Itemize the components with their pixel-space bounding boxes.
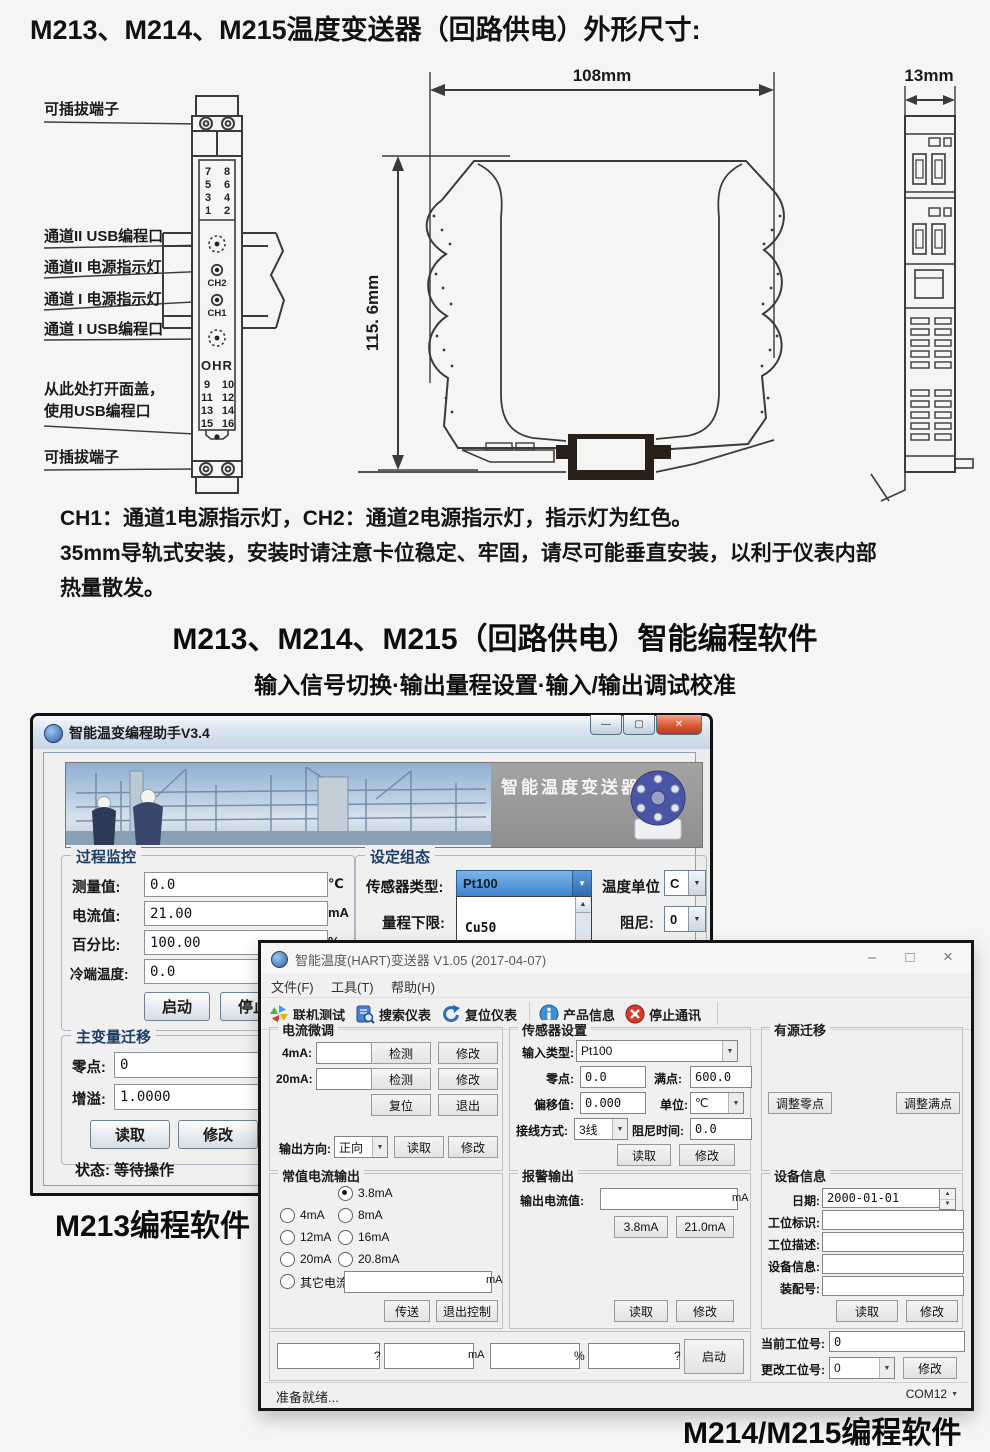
radio-8ma[interactable] [338,1208,353,1223]
unit-combo[interactable]: ℃ ▼ [690,1092,744,1114]
radio-other-current[interactable] [280,1274,295,1289]
titlebar[interactable]: 智能温变编程助手V3.4 — ▢ ✕ [33,716,710,749]
group-title: 报警输出 [518,1166,578,1185]
gain-label: 增溢: [72,1088,106,1109]
menu-file[interactable]: 文件(F) [271,977,314,996]
tag-input[interactable] [822,1210,964,1230]
status-text: 准备就绪... [276,1387,339,1406]
current-unit: mA [328,905,349,920]
reset-icon [441,1004,461,1024]
modify-20ma-button[interactable]: 修改 [438,1068,498,1090]
sensor-type-combo[interactable]: Pt100 ▼ [456,870,592,897]
offset-input[interactable]: 0.000 [580,1092,646,1114]
svg-text:7: 7 [205,166,211,178]
svg-text:12: 12 [222,392,234,404]
callout-plug-top: 可插拔端子 [44,98,119,119]
radio-label: 20mA [300,1252,331,1266]
maximize-button[interactable]: □ [895,943,925,971]
test-input-1[interactable] [277,1343,380,1369]
radio-12ma[interactable] [280,1230,295,1245]
toolbar-reset-device[interactable]: 复位仪表 [441,1002,517,1026]
alarm-output-input[interactable] [600,1188,738,1210]
measure-unit: ℃ [328,876,344,892]
date-input[interactable]: 2000-01-01 [822,1188,946,1208]
svg-text:5: 5 [205,179,211,191]
send-button[interactable]: 传送 [384,1300,430,1322]
chevron-down-icon[interactable]: ▼ [688,907,705,931]
svg-text:9: 9 [204,379,210,391]
svg-text:CH2: CH2 [207,278,226,289]
maximize-button[interactable]: ▢ [623,715,655,735]
svg-text:15: 15 [201,418,213,430]
minimize-button[interactable]: – [857,943,887,971]
damping-time-input[interactable]: 0.0 [690,1118,752,1140]
software-section-title: M213、M214、M215（回路供电）智能编程软件 [0,614,990,658]
chevron-down-icon: ▼ [951,1391,958,1398]
separator-2: mA [468,1349,485,1361]
chevron-down-icon[interactable]: ▼ [728,1093,743,1113]
temp-unit-label: 温度单位 [602,876,660,897]
group-device-info: 设备信息 日期: 2000-01-01 ▲ ▼ 工位标识: 工位描述: 设备信息… [761,1173,963,1329]
change-station-combo[interactable]: 0 ▼ [829,1357,895,1379]
output-direction-combo[interactable]: 正向 ▼ [334,1136,388,1158]
menu-help[interactable]: 帮助(H) [391,977,435,996]
current-value-input[interactable]: 21.00 [144,901,328,926]
input-type-label: 输入类型: [522,1044,574,1061]
install-note-line3: 热量散发。 [60,572,960,602]
reset-button[interactable]: 复位 [371,1094,431,1116]
output-direction-label: 输出方向: [279,1140,331,1157]
toolbar-stop-comm[interactable]: 停止通讯 [625,1002,701,1026]
start-button[interactable]: 启动 [144,992,210,1021]
percent-label: 百分比: [72,934,120,955]
group-title: 设定组态 [365,846,435,867]
toolbar-search-device[interactable]: 搜索仪表 [355,1002,431,1026]
direction-modify-button[interactable]: 修改 [448,1136,498,1158]
alarm-output-label: 输出电流值: [520,1192,584,1209]
change-station-label: 更改工位号: [761,1361,825,1378]
svg-text:11: 11 [201,392,213,404]
radio-label: 20.8mA [358,1252,399,1266]
svg-text:CH1: CH1 [207,308,227,319]
test-input-4[interactable] [588,1343,680,1369]
sensor-modify-button[interactable]: 修改 [679,1144,735,1166]
svg-text:2: 2 [224,205,230,217]
group-sensor-settings: 传感器设置 输入类型: Pt100 ▼ 零点: 0.0 满点: 600.0 偏移… [509,1027,751,1171]
zero-label: 零点: [546,1070,574,1087]
start-button[interactable]: 启动 [684,1339,744,1374]
group-title: 有源迁移 [770,1020,830,1039]
app-icon [44,724,63,743]
svg-text:13mm: 13mm [904,66,953,85]
app-icon [271,951,288,968]
measure-label: 测量值: [72,876,120,897]
svg-text:14: 14 [222,405,235,417]
chevron-down-icon[interactable]: ▼ [372,1137,387,1157]
direction-read-button[interactable]: 读取 [394,1136,444,1158]
product-page: M213、M214、M215温度变送器（回路供电）外形尺寸: [0,0,990,1452]
install-note-line2: 35mm导轨式安装，安装时请注意卡位稳定、牢固，请尽可能垂直安装，以利于仪表内部 [60,537,960,567]
top-view-drawing: 108mm 115. 6mm [350,58,790,504]
offset-label: 偏移值: [534,1096,574,1113]
window-title: 智能温变编程助手V3.4 [69,723,210,743]
trim-4ma-input[interactable] [316,1042,376,1064]
svg-text:115. 6mm: 115. 6mm [363,275,382,352]
measure-value-input[interactable]: 0.0 [144,872,328,897]
install-note-line1: CH1：通道1电源指示灯，CH2：通道2电源指示灯，指示灯为红色。 [60,502,960,532]
current-station-input[interactable]: 0 [829,1331,965,1352]
manual-test-panel: ? mA % ? 启动 [269,1331,751,1381]
radio-4ma[interactable] [280,1208,295,1223]
chevron-down-icon[interactable]: ▼ [688,871,705,895]
transmitter-product-image [622,769,694,843]
alarm-high-button[interactable]: 21.0mA [676,1216,734,1238]
radio-3-8ma[interactable] [338,1186,353,1201]
svg-text:4: 4 [224,192,231,204]
wiring-label: 接线方式: [516,1122,568,1139]
close-button[interactable]: × [933,943,963,971]
device-read-button[interactable]: 读取 [836,1300,898,1322]
group-title: 电流微调 [278,1020,338,1039]
svg-text:8: 8 [224,166,230,178]
detect-4ma-button[interactable]: 检测 [371,1042,431,1064]
exit-button[interactable]: 退出 [438,1094,498,1116]
group-title: 设备信息 [770,1166,830,1185]
toolbar-separator [717,1002,718,1025]
scroll-up-icon[interactable]: ▲ [576,897,590,913]
callout-plug-bottom: 可插拔端子 [44,446,119,467]
stop-icon [625,1004,645,1024]
separator-4: ? [674,1349,681,1363]
modify-4ma-button[interactable]: 修改 [438,1042,498,1064]
input-type-combo[interactable]: Pt100 ▼ [576,1040,738,1062]
sensor-type-label: 传感器类型: [366,876,443,897]
radio-label: 3.8mA [358,1186,393,1200]
radio-label: 12mA [300,1230,331,1244]
date-spinner[interactable]: ▲ ▼ [939,1188,956,1210]
station-modify-button[interactable]: 修改 [903,1357,957,1379]
modify-button[interactable]: 修改 [178,1120,258,1149]
radio-20ma[interactable] [280,1252,295,1267]
radio-label: 16mA [358,1230,389,1244]
device-modify-button[interactable]: 修改 [906,1300,958,1322]
tag-label: 工位标识: [766,1214,820,1231]
separator-1: ? [374,1349,381,1363]
damping-label: 阻尼: [620,912,654,933]
callout-ch1-led: 通道 I 电源指示灯 [44,288,162,309]
radio-label: 8mA [358,1208,383,1222]
search-icon [355,1004,375,1024]
statusbar: 准备就绪... COM12 ▼ [264,1382,968,1405]
svg-text:3: 3 [205,192,211,204]
status-text: 状态: 等待操作 [75,1159,174,1180]
group-current-trim: 电流微调 4mA: 检测 修改 20mA: 检测 修改 复位 退出 输出方向: … [269,1027,503,1171]
group-title: 过程监控 [71,846,141,867]
alarm-modify-button[interactable]: 修改 [676,1300,734,1322]
titlebar[interactable]: 智能温度(HART)变送器 V1.05 (2017-04-07) – □ × [261,943,971,973]
svg-text:10: 10 [222,379,234,391]
current-station-label: 当前工位号: [761,1335,825,1352]
trim-4ma-label: 4mA: [282,1046,312,1060]
adjust-zero-button[interactable]: 调整零点 [768,1092,832,1114]
callout-ch2-led: 通道II 电源指示灯 [44,256,162,277]
other-current-input[interactable] [344,1271,492,1293]
full-input[interactable]: 600.0 [690,1066,752,1088]
com-port-select[interactable]: COM12 ▼ [906,1387,958,1401]
trim-20ma-label: 20mA: [276,1072,313,1086]
close-button[interactable]: ✕ [656,715,702,735]
range-low-label: 量程下限: [382,912,445,933]
wiring-combo[interactable]: 3线 ▼ [574,1118,628,1140]
cold-junction-label: 冷端温度: [70,963,129,983]
group-constant-output: 常值电流输出 3.8mA 4mA 8mA 12mA 16mA 20mA 20.8… [269,1173,503,1329]
group-title: 主变量迁移 [71,1026,156,1047]
callout-open-cover-1: 从此处打开面盖， [44,378,164,399]
radio-20-8ma[interactable] [338,1252,353,1267]
radio-label: 4mA [300,1208,325,1222]
damping-combo[interactable]: 0 ▼ [664,906,706,932]
other-current-label: 其它电流 [300,1274,348,1291]
radio-16ma[interactable] [338,1230,353,1245]
station-panel: 当前工位号: 0 更改工位号: 0 ▼ 修改 [759,1329,961,1383]
svg-text:13: 13 [201,405,213,417]
plant-photo [66,763,491,845]
alarm-output-unit: mA [732,1192,749,1204]
spin-up-icon[interactable]: ▲ [940,1189,955,1200]
group-active-shift: 有源迁移 调整零点 调整满点 [761,1027,963,1171]
window-title: 智能温度(HART)变送器 V1.05 (2017-04-07) [295,950,546,969]
software-section-subtitle: 输入信号切换·输出量程设置·输入/输出调试校准 [0,666,990,700]
svg-text:OHR: OHR [201,358,233,373]
info-input[interactable] [822,1254,964,1274]
full-label: 满点: [654,1070,682,1087]
unit-label: 单位: [660,1096,688,1113]
window-m214-m215-programmer: 智能温度(HART)变送器 V1.05 (2017-04-07) – □ × 文… [258,940,974,1411]
read-button[interactable]: 读取 [90,1120,170,1149]
page-title: M213、M214、M215温度变送器（回路供电）外形尺寸: [30,8,701,47]
test-input-3[interactable] [490,1343,580,1369]
trim-20ma-input[interactable] [316,1068,376,1090]
chevron-down-icon[interactable]: ▼ [572,871,591,896]
callout-open-cover-2: 使用USB编程口 [44,400,151,421]
other-current-unit: mA [486,1274,503,1286]
sensor-read-button[interactable]: 读取 [617,1144,671,1166]
chevron-down-icon[interactable]: ▼ [722,1041,737,1061]
group-alarm-output: 报警输出 输出电流值: mA 3.8mA 21.0mA 读取 修改 [509,1173,751,1329]
temp-unit-combo[interactable]: C ▼ [664,870,706,896]
dropdown-item-cu50[interactable]: Cu50 [465,921,496,936]
zero-label: 零点: [72,1056,106,1077]
caption-m214-m215: M214/M215编程软件 [683,1408,961,1452]
chevron-down-icon[interactable]: ▼ [612,1119,627,1139]
assembly-input[interactable] [822,1276,964,1296]
current-label: 电流值: [72,905,120,926]
alarm-low-button[interactable]: 3.8mA [614,1216,668,1238]
svg-text:1: 1 [205,205,211,217]
callout-ch1-usb: 通道 I USB编程口 [44,318,163,339]
zero-input[interactable]: 0.0 [580,1066,646,1088]
detect-20ma-button[interactable]: 检测 [371,1068,431,1090]
test-input-2[interactable] [384,1343,474,1369]
chevron-down-icon[interactable]: ▼ [879,1358,894,1378]
date-label: 日期: [766,1192,820,1209]
banner: 智能温度变送器 [65,762,703,848]
alarm-read-button[interactable]: 读取 [614,1300,668,1322]
side-view-drawing: 13mm [855,60,985,502]
group-title: 常值电流输出 [278,1166,364,1185]
menu-tools[interactable]: 工具(T) [331,977,374,996]
exit-control-button[interactable]: 退出控制 [436,1300,498,1322]
callout-ch2-usb: 通道II USB编程口 [44,225,163,246]
group-title: 传感器设置 [518,1020,591,1039]
spin-down-icon[interactable]: ▼ [940,1200,955,1210]
caption-m213: M213编程软件 [55,1201,250,1245]
damping-time-label: 阻尼时间: [632,1122,684,1139]
desc-input[interactable] [822,1232,964,1252]
banner-right: 智能温度变送器 [491,763,702,847]
svg-text:108mm: 108mm [573,66,632,85]
menubar: 文件(F) 工具(T) 帮助(H) [261,973,971,997]
banner-caption: 智能温度变送器 [501,773,641,798]
minimize-button[interactable]: — [590,715,622,735]
adjust-full-button[interactable]: 调整满点 [896,1092,960,1114]
svg-text:16: 16 [222,418,234,430]
toolbar: 联机测试 搜索仪表 复位仪表 [261,997,971,1030]
desc-label: 工位描述: [766,1236,820,1253]
svg-text:6: 6 [224,179,230,191]
separator-3: % [574,1349,585,1363]
assembly-label: 装配号: [766,1280,820,1297]
info-label: 设备信息: [766,1258,820,1275]
